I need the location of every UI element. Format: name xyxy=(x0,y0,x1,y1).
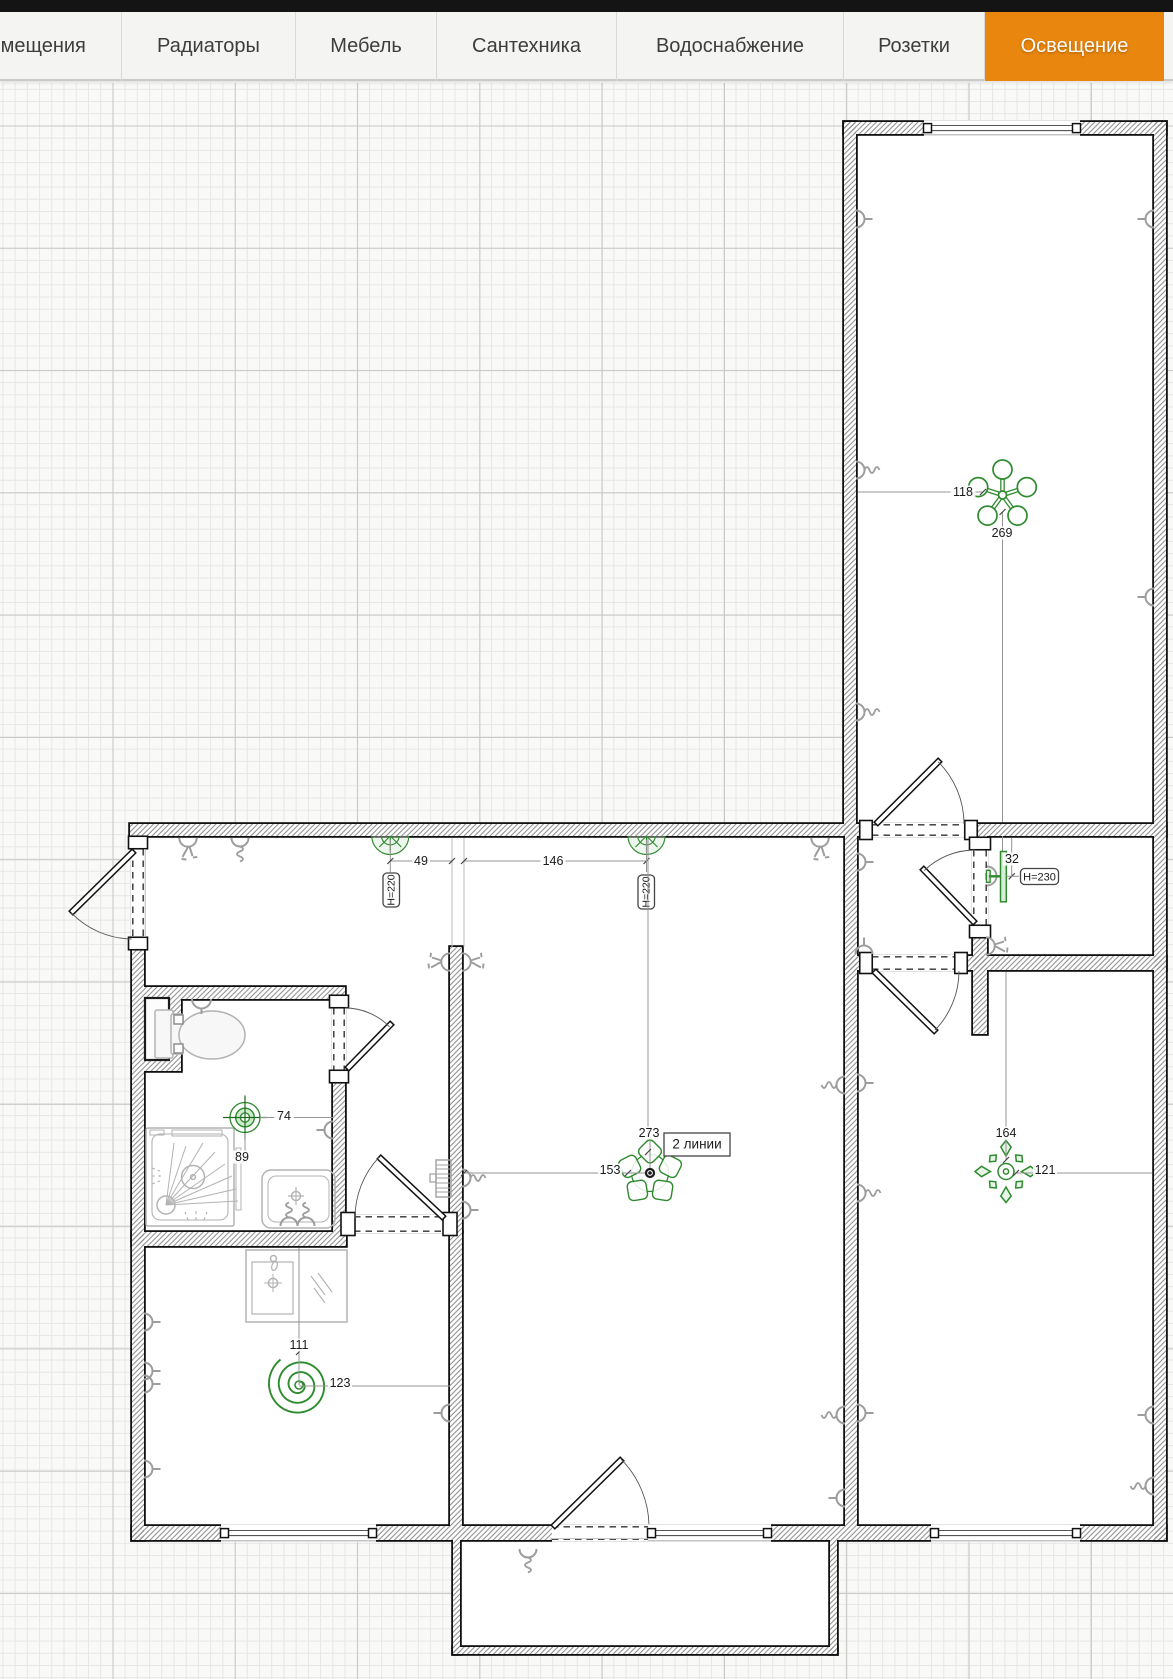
svg-text:49: 49 xyxy=(414,854,428,868)
svg-text:121: 121 xyxy=(1035,1163,1056,1177)
svg-text:H=220: H=220 xyxy=(385,874,397,905)
svg-text:89: 89 xyxy=(235,1150,249,1164)
svg-text:146: 146 xyxy=(543,854,564,868)
svg-text:273: 273 xyxy=(639,1126,660,1140)
svg-text:111: 111 xyxy=(289,1338,308,1352)
svg-text:164: 164 xyxy=(996,1126,1017,1140)
svg-text:153: 153 xyxy=(600,1163,621,1177)
svg-text:H=220: H=220 xyxy=(640,876,652,907)
svg-text:74: 74 xyxy=(277,1109,291,1123)
svg-text:123: 123 xyxy=(330,1376,351,1390)
svg-text:2 линии: 2 линии xyxy=(672,1137,721,1152)
svg-text:H=230: H=230 xyxy=(1023,872,1056,884)
svg-text:32: 32 xyxy=(1005,852,1019,866)
svg-text:118: 118 xyxy=(953,485,973,499)
svg-text:269: 269 xyxy=(992,526,1013,540)
